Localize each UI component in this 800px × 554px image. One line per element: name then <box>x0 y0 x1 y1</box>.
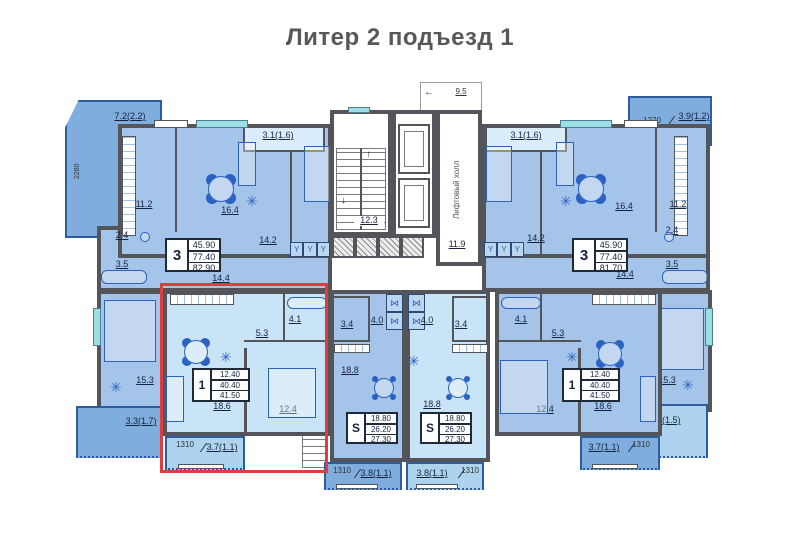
right1-area-stamp: 1 12.40 40.40 41.50 <box>562 368 620 402</box>
closet-icon: ⋈ <box>408 294 425 312</box>
left3-bath-label: 3.5 <box>108 260 136 270</box>
left3-stamp-usable: 77.40 <box>189 251 219 263</box>
wardrobe-icon: Y <box>303 242 316 257</box>
right3-stamp-usable: 77.40 <box>596 251 626 263</box>
right1-bedroom-wall-h <box>495 340 581 342</box>
studio-right-stamp-total: 27.30 <box>440 435 470 444</box>
closet-icon: ⋈ <box>386 294 403 312</box>
left3-window-glass <box>196 120 248 128</box>
table-icon <box>374 378 394 398</box>
right3-stamp-living: 45.90 <box>596 240 626 251</box>
highlighted-apartment-frame[interactable] <box>160 283 328 473</box>
left3-living-label: 16.4 <box>212 206 248 216</box>
studio-left-area-stamp: S 18.80 26.20 27.30 <box>346 412 398 444</box>
right3-window-glass <box>560 120 612 128</box>
bed-icon <box>104 300 156 362</box>
stairwell-window <box>348 107 370 113</box>
right1-balcony-dim: 1310 <box>628 440 654 449</box>
elevator-hall-area: 11.9 <box>442 240 472 250</box>
arrow-left-icon: ← <box>424 88 434 98</box>
studio-left-stamp-total: 27.30 <box>366 435 396 444</box>
right3-living-label: 16.4 <box>606 202 642 212</box>
right3-kitchen-counter <box>674 136 688 236</box>
left3-wc-label: 2.4 <box>108 231 136 241</box>
left3-stamp-living: 45.90 <box>189 240 219 251</box>
right1-stamp-living: 12.40 <box>582 370 618 380</box>
right1-stamp-total: 41.50 <box>582 391 618 400</box>
studio-left-stamp-living: 18.80 <box>366 414 396 424</box>
left3-area-stamp: 3 45.90 77.40 82.90 <box>165 238 221 272</box>
right3-wardrobe-icons: Y Y Y <box>484 242 524 257</box>
bathtub-icon <box>101 270 147 284</box>
studio-left-counter <box>334 344 370 353</box>
right3-window-white <box>624 120 658 128</box>
floor-plan-page: Литер 2 подъезд 1 7.2(2.2) 2280 11.2 16.… <box>0 0 800 554</box>
studio-left-main-label: 18.8 <box>334 366 366 376</box>
stairs-area-label: 12.3 <box>354 216 384 226</box>
vent-cell <box>332 236 355 258</box>
page-title: Литер 2 подъезд 1 <box>0 24 800 52</box>
studio-left-balcony-label: 3.8(1.1) <box>354 469 398 479</box>
elevator-car-2 <box>398 178 430 228</box>
right3-wall-kitchen-living <box>655 128 657 232</box>
left3-stamp-rooms: 3 <box>167 240 189 270</box>
plant-icon: ✳ <box>110 380 122 394</box>
left3-wardrobe-icons: Y Y Y <box>290 242 330 257</box>
right3-stamp-rooms: 3 <box>574 240 596 270</box>
plant-icon: ✳ <box>566 350 578 364</box>
wardrobe-icon: Y <box>497 242 510 257</box>
right1-stamp-usable: 40.40 <box>582 380 618 391</box>
wardrobe-icon: Y <box>317 242 330 257</box>
plant-icon: ✳ <box>408 354 420 368</box>
sofa-icon <box>640 376 656 422</box>
right3-bath-label: 3.5 <box>658 260 686 270</box>
elevator-hall-name: Лифтовый холл <box>452 148 464 232</box>
right1-balcony-label: 3.7(1.1) <box>582 443 626 453</box>
left3-window-white <box>154 120 188 128</box>
plant-icon: ✳ <box>560 194 572 208</box>
studio-right-main-label: 18.8 <box>416 400 448 410</box>
studio-left-hall-label: 4.0 <box>364 316 390 326</box>
bathtub-icon <box>501 297 541 309</box>
elevator-cab <box>404 131 424 167</box>
left3-bedroom-side-label: 15.3 <box>128 376 162 386</box>
dining-table-icon <box>598 342 622 366</box>
right3-loggia-label: 3.1(1.6) <box>500 131 552 141</box>
studio-right-stamp-rooms: S <box>422 414 440 442</box>
vent-cell <box>378 236 401 258</box>
right3-stamp-total: 81.70 <box>596 263 626 273</box>
studio-right-area-stamp: S 18.80 26.20 27.30 <box>420 412 472 444</box>
arrow-down-icon: ↓ <box>341 196 346 206</box>
table-icon <box>448 378 468 398</box>
left3-kitchen-label: 11.2 <box>126 200 162 210</box>
right1-kitchen-living-label: 18.6 <box>585 402 621 412</box>
bathtub-icon <box>662 270 708 284</box>
arrow-up-icon: ↑ <box>366 150 371 160</box>
sofa-icon <box>238 142 256 186</box>
right1-hall-label: 5.3 <box>544 329 572 339</box>
studio-left-stamp-rooms: S <box>348 414 366 442</box>
left3-kitchen-counter <box>122 136 136 236</box>
left3-bedroom-front-label: 14.2 <box>250 236 286 246</box>
studio-right-counter <box>452 344 488 353</box>
wardrobe-icon: Y <box>484 242 497 257</box>
studio-right-stamp-living: 18.80 <box>440 414 470 424</box>
wardrobe-icon: Y <box>511 242 524 257</box>
bed-icon <box>304 146 330 202</box>
right3-kitchen-label: 11.2 <box>660 200 696 210</box>
dining-table-icon <box>208 176 234 202</box>
studio-left-stamp-usable: 26.20 <box>366 424 396 435</box>
left3-loggia-label: 3.1(1.6) <box>252 131 304 141</box>
toilet-icon <box>140 232 150 242</box>
studio-right-hall-label: 4.0 <box>414 316 440 326</box>
left3-balcony-top-label: 7.2(2.2) <box>100 112 160 122</box>
right1-stamp-rooms: 1 <box>564 370 582 400</box>
right3-balcony-top-label: 3.9(1.2) <box>674 112 714 122</box>
dining-table-icon <box>578 176 604 202</box>
studio-right-bath-label: 3.4 <box>448 320 474 330</box>
right3-area-stamp: 3 45.90 77.40 81.70 <box>572 238 628 272</box>
right1-balcony-rail <box>592 464 638 469</box>
sofa-icon <box>556 142 574 186</box>
studio-left-bath-label: 3.4 <box>334 320 360 330</box>
studio-left-balcony-rail <box>336 484 378 489</box>
studio-right-balcony-label: 3.8(1.1) <box>410 469 454 479</box>
left3-balcony-side-label: 3.3(1.7) <box>116 417 166 427</box>
studio-right-balcony-rail <box>416 484 458 489</box>
core-width-dim: 9.5 <box>446 87 476 96</box>
bed-icon <box>500 360 548 414</box>
plant-icon: ✳ <box>682 378 694 392</box>
right1-kitchen-counter <box>592 294 656 305</box>
left3-balcony-side <box>76 406 162 458</box>
elevator-car-1 <box>398 124 430 174</box>
vent-cell <box>355 236 378 258</box>
wardrobe-icon: Y <box>290 242 303 257</box>
vent-cell <box>401 236 424 258</box>
right3-side-window <box>705 308 713 346</box>
toilet-icon <box>664 232 674 242</box>
studio-left-balcony-dim: 1310 <box>330 466 354 475</box>
left3-balcony-top-dim: 2280 <box>74 150 84 192</box>
vent-shafts <box>332 236 424 258</box>
elevator-cab <box>404 185 424 221</box>
right1-bath-label: 4.1 <box>508 315 534 325</box>
studio-right-balcony-dim: 1310 <box>458 466 482 475</box>
left3-side-window <box>93 308 101 346</box>
left3-stamp-total: 82.90 <box>189 263 219 273</box>
studio-right-stamp-usable: 26.20 <box>440 424 470 435</box>
left3-wall-kitchen-living <box>175 128 177 232</box>
plant-icon: ✳ <box>246 194 258 208</box>
bed-icon <box>486 146 512 202</box>
